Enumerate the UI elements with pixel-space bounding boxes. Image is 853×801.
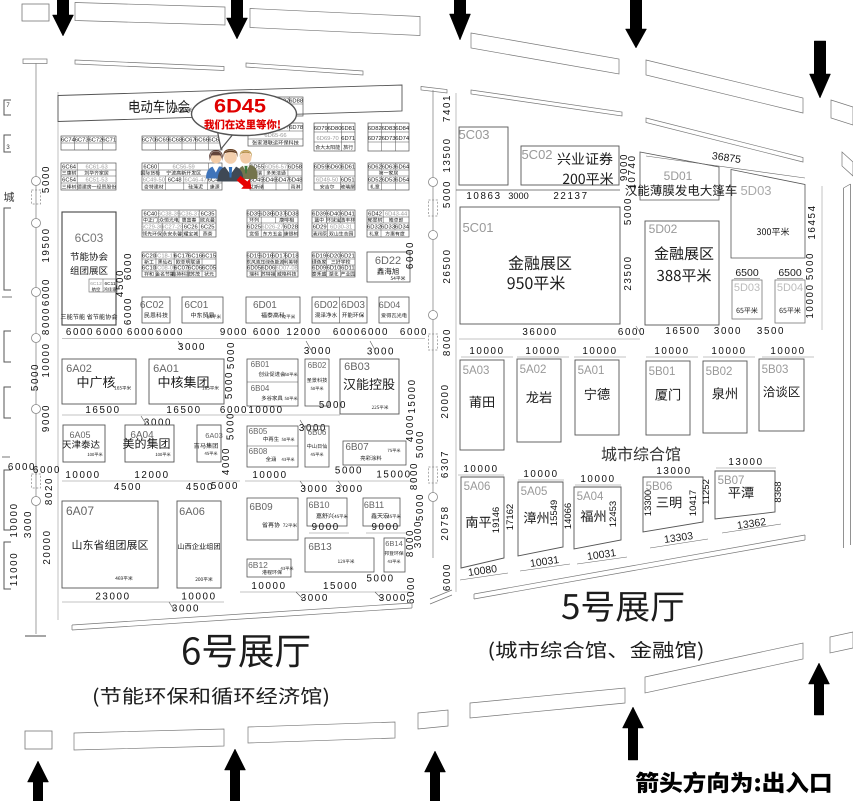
svg-text:8020: 8020 — [44, 477, 55, 505]
svg-text:4500: 4500 — [186, 482, 214, 493]
svg-text:16500: 16500 — [85, 405, 120, 416]
svg-text:6D88: 6D88 — [289, 98, 303, 104]
svg-text:3000: 3000 — [23, 510, 34, 538]
svg-text:6C61-63: 6C61-63 — [85, 164, 107, 170]
svg-text:6C71: 6C71 — [102, 137, 116, 143]
svg-text:5D02: 5D02 — [649, 222, 678, 236]
svg-text:6C73: 6C73 — [75, 137, 89, 143]
svg-text:6D83: 6D83 — [382, 126, 396, 132]
svg-text:6D41: 6D41 — [341, 211, 355, 217]
svg-text:6D20: 6D20 — [327, 253, 341, 259]
svg-text:6C16: 6C16 — [188, 253, 202, 259]
svg-text:6D18: 6D18 — [285, 253, 299, 259]
svg-text:6B06: 6B06 — [308, 428, 327, 437]
svg-text:8000: 8000 — [442, 328, 453, 356]
svg-text:6C69: 6C69 — [155, 137, 169, 143]
svg-text:6000: 6000 — [361, 327, 389, 338]
svg-text:6C40: 6C40 — [143, 211, 157, 217]
svg-text:6D28: 6D28 — [284, 224, 298, 230]
svg-text:6D58: 6D58 — [288, 164, 302, 170]
svg-text:20000: 20000 — [440, 383, 451, 418]
svg-text:6C02: 6C02 — [140, 300, 164, 311]
svg-text:10417: 10417 — [688, 490, 699, 516]
svg-text:6B12: 6B12 — [248, 560, 268, 570]
svg-text:5000: 5000 — [224, 371, 235, 399]
svg-text:6C38-39: 6C38-39 — [158, 211, 180, 217]
svg-text:6D33: 6D33 — [381, 224, 395, 230]
svg-text:6D79: 6D79 — [314, 126, 328, 132]
svg-text:16454: 16454 — [807, 204, 818, 239]
svg-text:10000: 10000 — [582, 346, 617, 357]
svg-text:6C01: 6C01 — [184, 300, 208, 311]
svg-text:6D72: 6D72 — [368, 136, 382, 142]
svg-text:6B11: 6B11 — [364, 500, 384, 510]
svg-text:6000: 6000 — [41, 278, 52, 306]
svg-text:6D43-44: 6D43-44 — [385, 211, 408, 217]
svg-text:5B07: 5B07 — [718, 475, 745, 487]
svg-text:6D29: 6D29 — [313, 224, 327, 230]
svg-text:6000: 6000 — [442, 563, 453, 591]
svg-text:4500: 4500 — [115, 269, 126, 297]
svg-text:10000: 10000 — [523, 469, 558, 480]
svg-text:6C17: 6C17 — [174, 253, 188, 259]
svg-text:6000: 6000 — [618, 327, 646, 338]
svg-text:13300: 13300 — [643, 490, 654, 516]
svg-text:6000: 6000 — [66, 327, 94, 338]
svg-text:6B02: 6B02 — [308, 361, 327, 370]
svg-text:9000: 9000 — [41, 404, 52, 432]
svg-text:6D54: 6D54 — [395, 177, 410, 183]
svg-text:3500: 3500 — [757, 326, 785, 337]
svg-text:6500: 6500 — [735, 267, 759, 279]
svg-text:5000: 5000 — [335, 466, 363, 477]
svg-text:10000: 10000 — [654, 346, 689, 357]
svg-text:16500: 16500 — [665, 326, 700, 337]
svg-text:23000: 23000 — [95, 592, 130, 603]
svg-text:14066: 14066 — [563, 503, 574, 529]
svg-text:6D80: 6D80 — [328, 126, 342, 132]
svg-text:6C03: 6C03 — [75, 231, 104, 245]
svg-text:6D61: 6D61 — [341, 164, 355, 170]
svg-text:10000: 10000 — [469, 346, 504, 357]
svg-text:15000: 15000 — [323, 581, 358, 592]
svg-text:6D56-57: 6D56-57 — [265, 164, 287, 170]
svg-text:6D53: 6D53 — [382, 177, 396, 183]
svg-text:6C46-47: 6C46-47 — [185, 177, 207, 183]
svg-text:6A06: 6A06 — [179, 506, 205, 518]
svg-text:11000: 11000 — [9, 552, 20, 587]
svg-text:6C74: 6C74 — [61, 137, 76, 143]
svg-text:20758: 20758 — [440, 505, 451, 540]
svg-text:6A07: 6A07 — [66, 504, 94, 518]
svg-text:22137: 22137 — [553, 191, 588, 202]
svg-text:6D51: 6D51 — [341, 177, 355, 183]
svg-text:13500: 13500 — [442, 137, 453, 172]
svg-text:9000: 9000 — [220, 327, 248, 338]
svg-text:6D60: 6D60 — [328, 164, 342, 170]
svg-text:6A03: 6A03 — [205, 431, 223, 440]
svg-text:10863: 10863 — [466, 191, 501, 202]
svg-text:10000: 10000 — [181, 592, 216, 603]
svg-text:5D01: 5D01 — [664, 169, 693, 183]
svg-text:4000: 4000 — [221, 447, 232, 475]
svg-text:5000: 5000 — [41, 165, 52, 193]
svg-text:15000: 15000 — [407, 378, 418, 413]
svg-text:13000: 13000 — [656, 466, 691, 477]
svg-text:5D03: 5D03 — [734, 282, 760, 294]
svg-text:6D82: 6D82 — [368, 126, 382, 132]
svg-text:6000: 6000 — [253, 327, 281, 338]
svg-text:10000: 10000 — [65, 470, 100, 481]
svg-text:6C18-19: 6C18-19 — [154, 253, 176, 259]
svg-text:20000: 20000 — [42, 529, 53, 564]
svg-text:6D45: 6D45 — [214, 96, 266, 118]
svg-text:6C68: 6C68 — [168, 137, 182, 143]
svg-text:5000: 5000 — [226, 341, 237, 369]
svg-text:9000: 9000 — [312, 522, 340, 533]
svg-text:16500: 16500 — [166, 405, 201, 416]
svg-text:12000: 12000 — [134, 470, 169, 481]
svg-text:6C27-28: 6C27-28 — [161, 224, 183, 230]
svg-text:6D69-70: 6D69-70 — [317, 136, 339, 142]
svg-text:6B03: 6B03 — [344, 361, 370, 373]
svg-text:6000: 6000 — [400, 327, 428, 338]
svg-text:5B01: 5B01 — [649, 366, 676, 378]
svg-text:11252: 11252 — [701, 479, 712, 505]
svg-text:12000: 12000 — [286, 327, 321, 338]
svg-text:5000: 5000 — [30, 363, 41, 391]
svg-text:6D39: 6D39 — [312, 211, 326, 217]
svg-text:6C35: 6C35 — [201, 211, 215, 217]
svg-text:5A05: 5A05 — [521, 486, 548, 498]
svg-text:6A02: 6A02 — [66, 363, 92, 375]
svg-text:6D64: 6D64 — [395, 164, 410, 170]
svg-text:6C51-53: 6C51-53 — [85, 177, 107, 183]
svg-text:6A01: 6A01 — [153, 363, 179, 375]
svg-text:6B07: 6B07 — [345, 442, 369, 453]
svg-text:3000: 3000 — [379, 593, 407, 604]
svg-text:6C49-50: 6C49-50 — [143, 177, 165, 183]
svg-text:3000: 3000 — [144, 418, 172, 429]
svg-text:3000: 3000 — [714, 326, 742, 337]
svg-text:13000: 13000 — [728, 457, 763, 468]
svg-text:5A03: 5A03 — [463, 365, 490, 377]
svg-text:6C25: 6C25 — [201, 224, 215, 230]
svg-text:5000: 5000 — [415, 430, 426, 458]
svg-text:6D25: 6D25 — [247, 224, 261, 230]
svg-text:10000: 10000 — [770, 346, 805, 357]
svg-text:5B03: 5B03 — [762, 364, 789, 376]
svg-text:6D49-50: 6D49-50 — [316, 177, 338, 183]
svg-text:6B04: 6B04 — [251, 384, 270, 393]
svg-text:17162: 17162 — [505, 504, 516, 530]
svg-text:6C60: 6C60 — [143, 164, 157, 170]
svg-text:6D84: 6D84 — [395, 126, 410, 132]
svg-text:10740: 10740 — [627, 154, 638, 189]
svg-text:6C56-59: 6C56-59 — [173, 164, 195, 170]
svg-text:6500: 6500 — [778, 267, 802, 279]
svg-text:8000: 8000 — [409, 462, 420, 490]
svg-text:5C02: 5C02 — [521, 147, 552, 162]
svg-text:6D78: 6D78 — [289, 125, 303, 131]
svg-text:6307: 6307 — [440, 450, 451, 478]
svg-text:6C29-30: 6C29-30 — [141, 224, 163, 230]
svg-text:6D65-66: 6D65-66 — [264, 133, 286, 139]
svg-text:5C01: 5C01 — [462, 220, 493, 235]
svg-text:23500: 23500 — [623, 255, 634, 290]
svg-text:6D34: 6D34 — [395, 224, 410, 230]
svg-text:6D02: 6D02 — [314, 300, 338, 311]
svg-text:10000: 10000 — [580, 474, 615, 485]
svg-text:6D73: 6D73 — [382, 136, 396, 142]
svg-text:6000: 6000 — [123, 297, 134, 325]
svg-text:6000: 6000 — [8, 462, 36, 473]
svg-text:10000: 10000 — [805, 283, 816, 318]
svg-text:4500: 4500 — [114, 482, 142, 493]
svg-text:9000: 9000 — [371, 522, 399, 533]
svg-text:6000: 6000 — [333, 327, 361, 338]
svg-text:3000: 3000 — [300, 484, 328, 495]
svg-text:7401: 7401 — [442, 94, 453, 122]
svg-text:6000: 6000 — [156, 327, 184, 338]
svg-text:6C26: 6C26 — [184, 224, 198, 230]
svg-text:6D42: 6D42 — [368, 211, 382, 217]
svg-text:3000: 3000 — [508, 191, 528, 201]
svg-text:26500: 26500 — [442, 248, 453, 283]
svg-text:6000: 6000 — [96, 327, 124, 338]
svg-text:6D48: 6D48 — [289, 177, 303, 183]
svg-text:6000: 6000 — [406, 576, 417, 604]
svg-text:6D81: 6D81 — [341, 126, 355, 132]
svg-text:6D52: 6D52 — [368, 177, 382, 183]
svg-text:6C72: 6C72 — [88, 137, 102, 143]
svg-text:10000: 10000 — [251, 581, 286, 592]
svg-text:5000: 5000 — [226, 412, 237, 440]
svg-text:36000: 36000 — [522, 327, 557, 338]
svg-text:6C36-37: 6C36-37 — [178, 211, 200, 217]
svg-text:8000: 8000 — [41, 307, 52, 335]
svg-text:6D22: 6D22 — [375, 255, 401, 267]
svg-text:5000: 5000 — [805, 252, 816, 280]
svg-text:19500: 19500 — [41, 227, 52, 262]
svg-text:5000: 5000 — [319, 400, 347, 411]
svg-text:6D03: 6D03 — [341, 300, 365, 311]
svg-text:5A01: 5A01 — [578, 365, 605, 377]
svg-text:6D26-27: 6D26-27 — [261, 224, 283, 230]
svg-text:6000: 6000 — [127, 327, 155, 338]
svg-text:5000: 5000 — [366, 573, 394, 584]
svg-text:6C67: 6C67 — [182, 137, 196, 143]
svg-text:3000: 3000 — [301, 593, 329, 604]
svg-text:3000: 3000 — [178, 342, 206, 353]
svg-text:6C15: 6C15 — [202, 253, 216, 259]
svg-text:6000: 6000 — [405, 241, 416, 269]
svg-text:6B05: 6B05 — [249, 427, 268, 436]
svg-text:6D21: 6D21 — [341, 253, 355, 259]
svg-text:6000: 6000 — [33, 465, 61, 476]
svg-text:6B13: 6B13 — [308, 542, 332, 553]
svg-text:5A04: 5A04 — [577, 491, 604, 503]
svg-text:5B02: 5B02 — [706, 366, 733, 378]
svg-text:5000: 5000 — [442, 180, 453, 208]
svg-text:6C66: 6C66 — [195, 137, 209, 143]
svg-text:3000: 3000 — [367, 347, 395, 358]
svg-text:5000: 5000 — [623, 197, 634, 225]
svg-text:6A05: 6A05 — [69, 430, 90, 440]
svg-text:15549: 15549 — [549, 500, 560, 526]
svg-text:6D63: 6D63 — [382, 164, 396, 170]
svg-text:6D30-31: 6D30-31 — [330, 224, 352, 230]
svg-text:6C12: 6C12 — [90, 281, 102, 287]
svg-text:5A02: 5A02 — [520, 364, 547, 376]
svg-text:3000: 3000 — [413, 520, 424, 548]
svg-text:5000: 5000 — [211, 481, 239, 492]
svg-text:10000: 10000 — [711, 346, 746, 357]
svg-text:6D01: 6D01 — [253, 300, 277, 311]
svg-text:6D32: 6D32 — [367, 224, 381, 230]
svg-text:5000: 5000 — [415, 493, 426, 521]
svg-text:10000: 10000 — [248, 405, 283, 416]
svg-text:5A06: 5A06 — [464, 481, 491, 493]
svg-text:6B10: 6B10 — [308, 500, 329, 510]
svg-text:6D47: 6D47 — [276, 177, 290, 183]
svg-text:5D04: 5D04 — [777, 282, 803, 294]
svg-text:3000: 3000 — [304, 346, 332, 357]
svg-text:6B09: 6B09 — [249, 502, 273, 513]
svg-text:19146: 19146 — [491, 507, 502, 533]
svg-text:6B14: 6B14 — [385, 539, 403, 548]
svg-text:10000: 10000 — [252, 470, 287, 481]
svg-text:6D71: 6D71 — [341, 136, 355, 142]
svg-text:6D19: 6D19 — [312, 253, 326, 259]
svg-text:6D38: 6D38 — [285, 211, 299, 217]
svg-text:6D59: 6D59 — [314, 164, 328, 170]
svg-text:6C64: 6C64 — [62, 164, 77, 170]
svg-text:3000: 3000 — [335, 484, 363, 495]
svg-text:6C54: 6C54 — [62, 177, 77, 183]
svg-text:15000: 15000 — [376, 470, 411, 481]
svg-text:5D03: 5D03 — [740, 183, 771, 198]
svg-text:10000: 10000 — [525, 346, 560, 357]
svg-text:8368: 8368 — [773, 481, 784, 502]
svg-text:10000: 10000 — [9, 502, 20, 537]
svg-text:6D46: 6D46 — [263, 177, 277, 183]
svg-text:6B08: 6B08 — [249, 447, 268, 456]
svg-text:6D04: 6D04 — [379, 300, 401, 310]
svg-text:6B01: 6B01 — [251, 360, 270, 369]
svg-text:10000: 10000 — [463, 464, 498, 475]
svg-text:6D62: 6D62 — [368, 164, 382, 170]
svg-text:12453: 12453 — [608, 501, 619, 527]
svg-text:6C70: 6C70 — [142, 137, 156, 143]
svg-text:3000: 3000 — [172, 604, 200, 615]
svg-text:6C48: 6C48 — [168, 177, 182, 183]
svg-text:10000: 10000 — [41, 342, 52, 377]
svg-text:6D74: 6D74 — [395, 136, 410, 142]
svg-text:5C03: 5C03 — [458, 127, 489, 142]
svg-text:6D40: 6D40 — [327, 211, 341, 217]
